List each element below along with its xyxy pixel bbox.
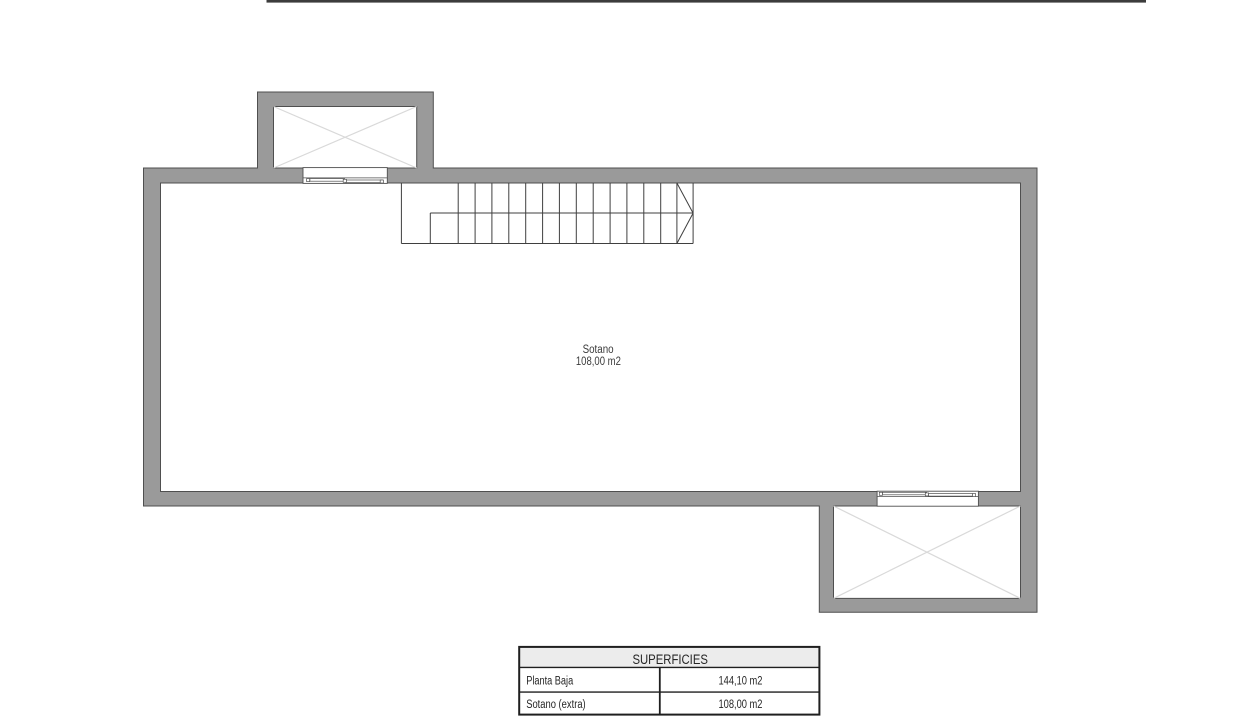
- svg-text:Planta Baja: Planta Baja: [526, 675, 573, 687]
- svg-text:144,10 m2: 144,10 m2: [719, 675, 763, 687]
- svg-text:108,00 m2: 108,00 m2: [719, 699, 763, 711]
- svg-text:Sotano: Sotano: [583, 344, 614, 356]
- svg-text:Sotano (extra): Sotano (extra): [526, 699, 586, 711]
- svg-text:108,00 m2: 108,00 m2: [576, 356, 621, 368]
- svg-text:SUPERFICIES: SUPERFICIES: [632, 652, 708, 667]
